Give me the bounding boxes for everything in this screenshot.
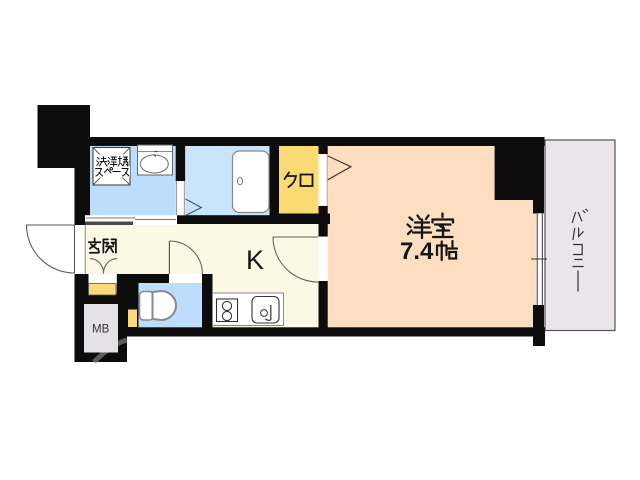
svg-text:MB: MB	[92, 324, 110, 336]
svg-text:K: K	[246, 245, 264, 275]
svg-text:7.4: 7.4	[400, 238, 434, 265]
